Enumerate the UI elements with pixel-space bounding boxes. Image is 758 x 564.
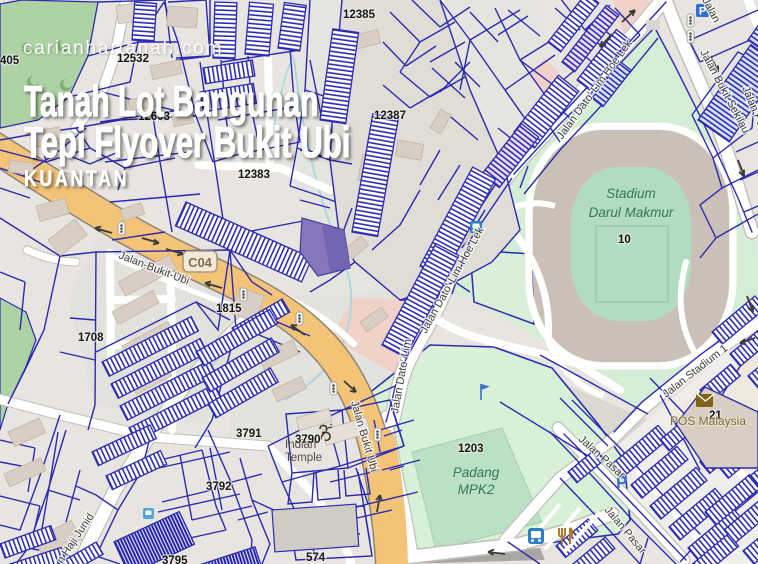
svg-text:MPK2: MPK2: [458, 482, 495, 497]
svg-text:574: 574: [306, 552, 326, 564]
svg-text:Temple: Temple: [285, 452, 322, 464]
svg-text:3795: 3795: [162, 555, 188, 564]
svg-text:12383: 12383: [238, 169, 270, 181]
svg-text:1203: 1203: [458, 443, 484, 455]
svg-text:Padang: Padang: [453, 465, 500, 480]
svg-text:10: 10: [618, 234, 631, 246]
svg-text:12385: 12385: [343, 9, 376, 21]
svg-text:405: 405: [0, 55, 20, 67]
svg-text:Darul Makmur: Darul Makmur: [589, 205, 674, 220]
svg-text:1815: 1815: [216, 303, 242, 315]
svg-text:Tepi Flyover Bukit Ubi: Tepi Flyover Bukit Ubi: [24, 118, 350, 168]
svg-text:12387: 12387: [374, 110, 406, 122]
svg-text:Indian: Indian: [285, 439, 316, 451]
svg-text:3791: 3791: [236, 428, 262, 440]
svg-text:POS Malaysia: POS Malaysia: [670, 414, 746, 428]
svg-text:1708: 1708: [78, 332, 104, 344]
svg-text:3792: 3792: [206, 481, 232, 493]
svg-text:C04: C04: [188, 255, 213, 270]
svg-text:Stadium: Stadium: [606, 186, 656, 201]
svg-text:carianhartanah.com: carianhartanah.com: [23, 38, 223, 59]
svg-text:KUANTAN: KUANTAN: [24, 167, 129, 191]
